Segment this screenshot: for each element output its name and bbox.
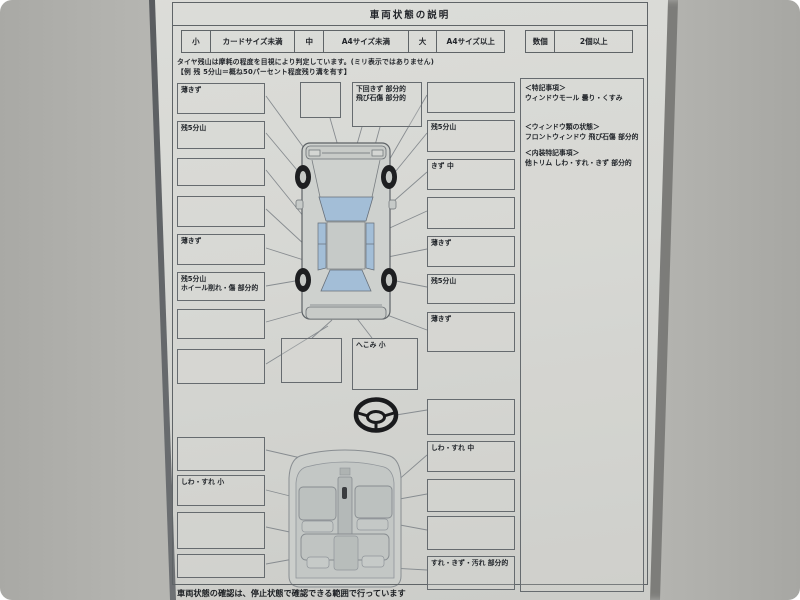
size-legend-key-medium: 中 — [295, 31, 324, 52]
condition-box-right-9: しわ・すれ 中 — [427, 441, 515, 472]
condition-box-right-10 — [427, 479, 515, 512]
count-legend-desc: 2個以上 — [555, 31, 632, 52]
size-legend-key-large: 大 — [409, 31, 438, 52]
condition-box-left-8 — [177, 349, 265, 384]
condition-box-left-5: 薄きず — [177, 234, 265, 265]
footer-note: 車両状態の確認は、停止状態で確認できる範囲で行っています — [177, 587, 637, 599]
tire-note-line2: 【例 残 5分山＝概ね50パーセント程度残り溝を有す】 — [177, 67, 507, 77]
size-legend-key-small: 小 — [182, 31, 211, 52]
size-legend-desc-small: カードサイズ未満 — [211, 31, 295, 52]
condition-box-right-5: 薄きず — [427, 236, 515, 267]
condition-box-left-7 — [177, 309, 265, 339]
form-title-bar: 車両状態の説明 — [172, 2, 648, 26]
size-legend-desc-large: A4サイズ以上 — [437, 31, 504, 52]
condition-box-right-7: 薄きず — [427, 312, 515, 352]
notes-section1-title: ＜特記事項＞ — [525, 82, 566, 92]
condition-box-left-2: 残5分山 — [177, 121, 265, 149]
size-legend-table: 小 カードサイズ未満 中 A4サイズ未満 大 A4サイズ以上 — [181, 30, 505, 53]
condition-box-left-4 — [177, 196, 265, 227]
condition-box-left-12 — [177, 554, 265, 578]
notes-section3-body: 他トリム しわ・すれ・きず 部分的 — [525, 157, 632, 167]
tire-note: タイヤ残山は摩耗の程度を目視により判定しています。(ミリ表示ではありません) 【… — [177, 57, 507, 77]
size-legend-desc-medium: A4サイズ未満 — [324, 31, 408, 52]
condition-box-undercarriage: 下回きず 部分的 飛び石傷 部分的 — [352, 82, 422, 127]
tire-note-line1: タイヤ残山は摩耗の程度を目視により判定しています。(ミリ表示ではありません) — [177, 57, 507, 67]
condition-box-right-2: 残5分山 — [427, 120, 515, 152]
condition-box-left-10: しわ・すれ 小 — [177, 475, 265, 506]
condition-box-top-center-empty — [300, 82, 341, 118]
condition-box-right-11 — [427, 516, 515, 550]
page-title: 車両状態の説明 — [370, 7, 451, 21]
special-notes-panel: ＜特記事項＞ ウィンドウモール 曇り・くすみ ＜ウィンドウ類の状態＞ フロントウ… — [520, 78, 644, 592]
notes-section1-body: ウィンドウモール 曇り・くすみ — [525, 92, 623, 102]
count-legend-table: 数個 2個以上 — [525, 30, 633, 53]
condition-box-right-3: きず 中 — [427, 159, 515, 190]
condition-box-right-1 — [427, 82, 515, 113]
count-legend-key: 数個 — [526, 31, 555, 52]
condition-box-mid-center-empty — [281, 338, 342, 383]
notes-section2-title: ＜ウィンドウ類の状態＞ — [525, 121, 600, 131]
condition-box-left-9 — [177, 437, 265, 471]
condition-box-right-4 — [427, 197, 515, 229]
condition-box-right-6: 残5分山 — [427, 274, 515, 304]
condition-box-left-11 — [177, 512, 265, 549]
notes-section2-body: フロントウィンドウ 飛び石傷 部分的 — [525, 131, 638, 141]
condition-box-left-3 — [177, 158, 265, 186]
condition-box-dent: へこみ 小 — [352, 338, 418, 390]
condition-box-left-1: 薄きず — [177, 83, 265, 114]
condition-box-left-6: 残5分山 ホイール削れ・傷 部分的 — [177, 272, 265, 301]
condition-box-right-12: すれ・きず・汚れ 部分的 — [427, 556, 515, 590]
notes-section3-title: ＜内装特記事項＞ — [525, 147, 579, 157]
condition-box-right-8 — [427, 399, 515, 435]
vehicle-condition-sheet-photo: 車両状態の説明 小 カードサイズ未満 中 A4サイズ未満 大 A4サイズ以上 数… — [0, 0, 800, 600]
